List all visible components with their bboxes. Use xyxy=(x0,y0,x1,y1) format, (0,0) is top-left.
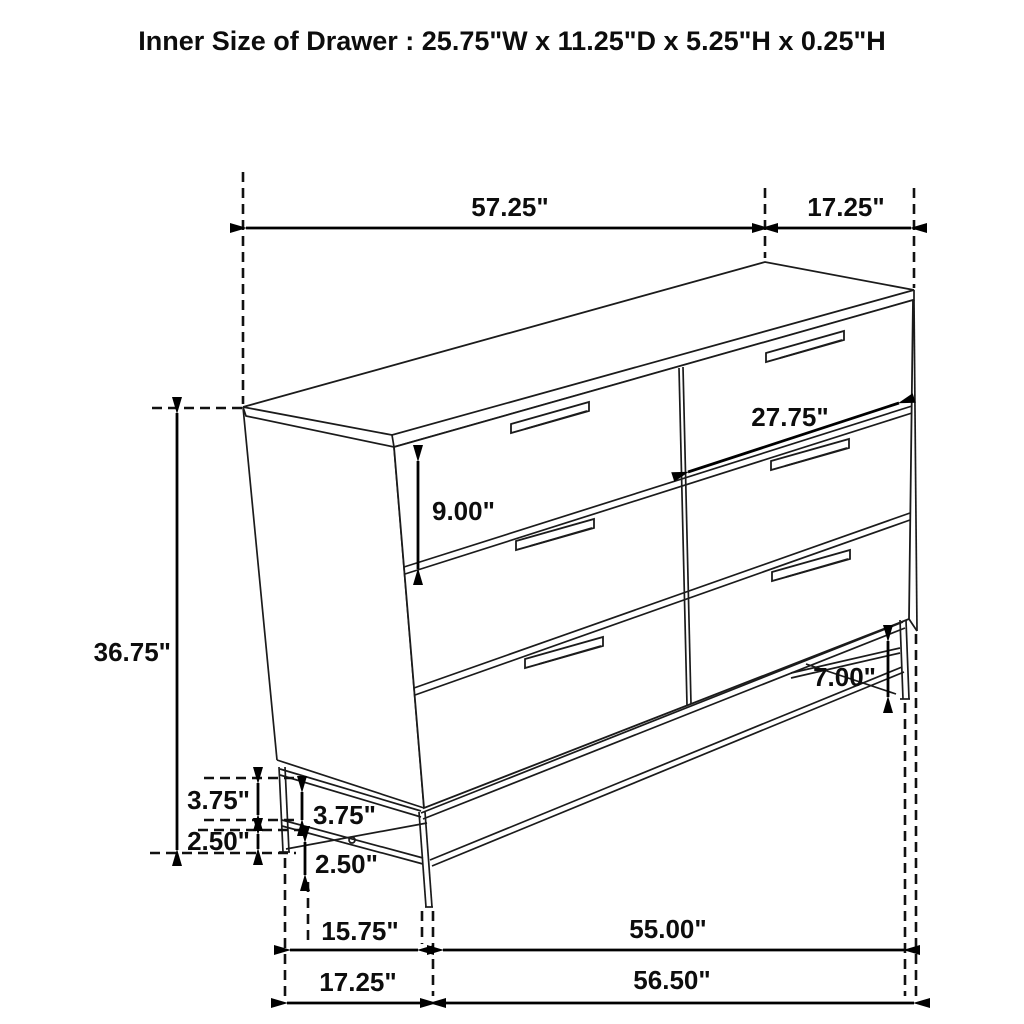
dim-drawer-width-label: 27.75" xyxy=(751,402,828,432)
dim-top-width-label: 57.25" xyxy=(471,192,548,222)
dim-foot-left-label: 2.50" xyxy=(187,826,250,856)
dresser-body xyxy=(243,262,917,808)
dim-overall-height-label: 36.75" xyxy=(94,637,171,667)
dim-base-width-total-label: 56.50" xyxy=(633,965,710,995)
dim-drawer-height-label: 9.00" xyxy=(432,496,495,526)
dim-base-depth-total-label: 17.25" xyxy=(319,967,396,997)
dim-frame-rail-left-label: 3.75" xyxy=(187,785,250,815)
dim-leg-clearance-label: 7.00" xyxy=(813,662,876,692)
dresser-diagram: 57.25" 17.25" 36.75" 9.00" 27.75" 7.00" … xyxy=(0,0,1024,1024)
dim-frame-rail-front-label: 3.75" xyxy=(313,800,376,830)
dim-foot-front-label: 2.50" xyxy=(315,849,378,879)
dim-base-span-front-label: 55.00" xyxy=(629,914,706,944)
dim-top-depth-label: 17.25" xyxy=(807,192,884,222)
dim-base-span-side-label: 15.75" xyxy=(321,916,398,946)
dimension-diagram-page: Inner Size of Drawer : 25.75"W x 11.25"D… xyxy=(0,0,1024,1024)
